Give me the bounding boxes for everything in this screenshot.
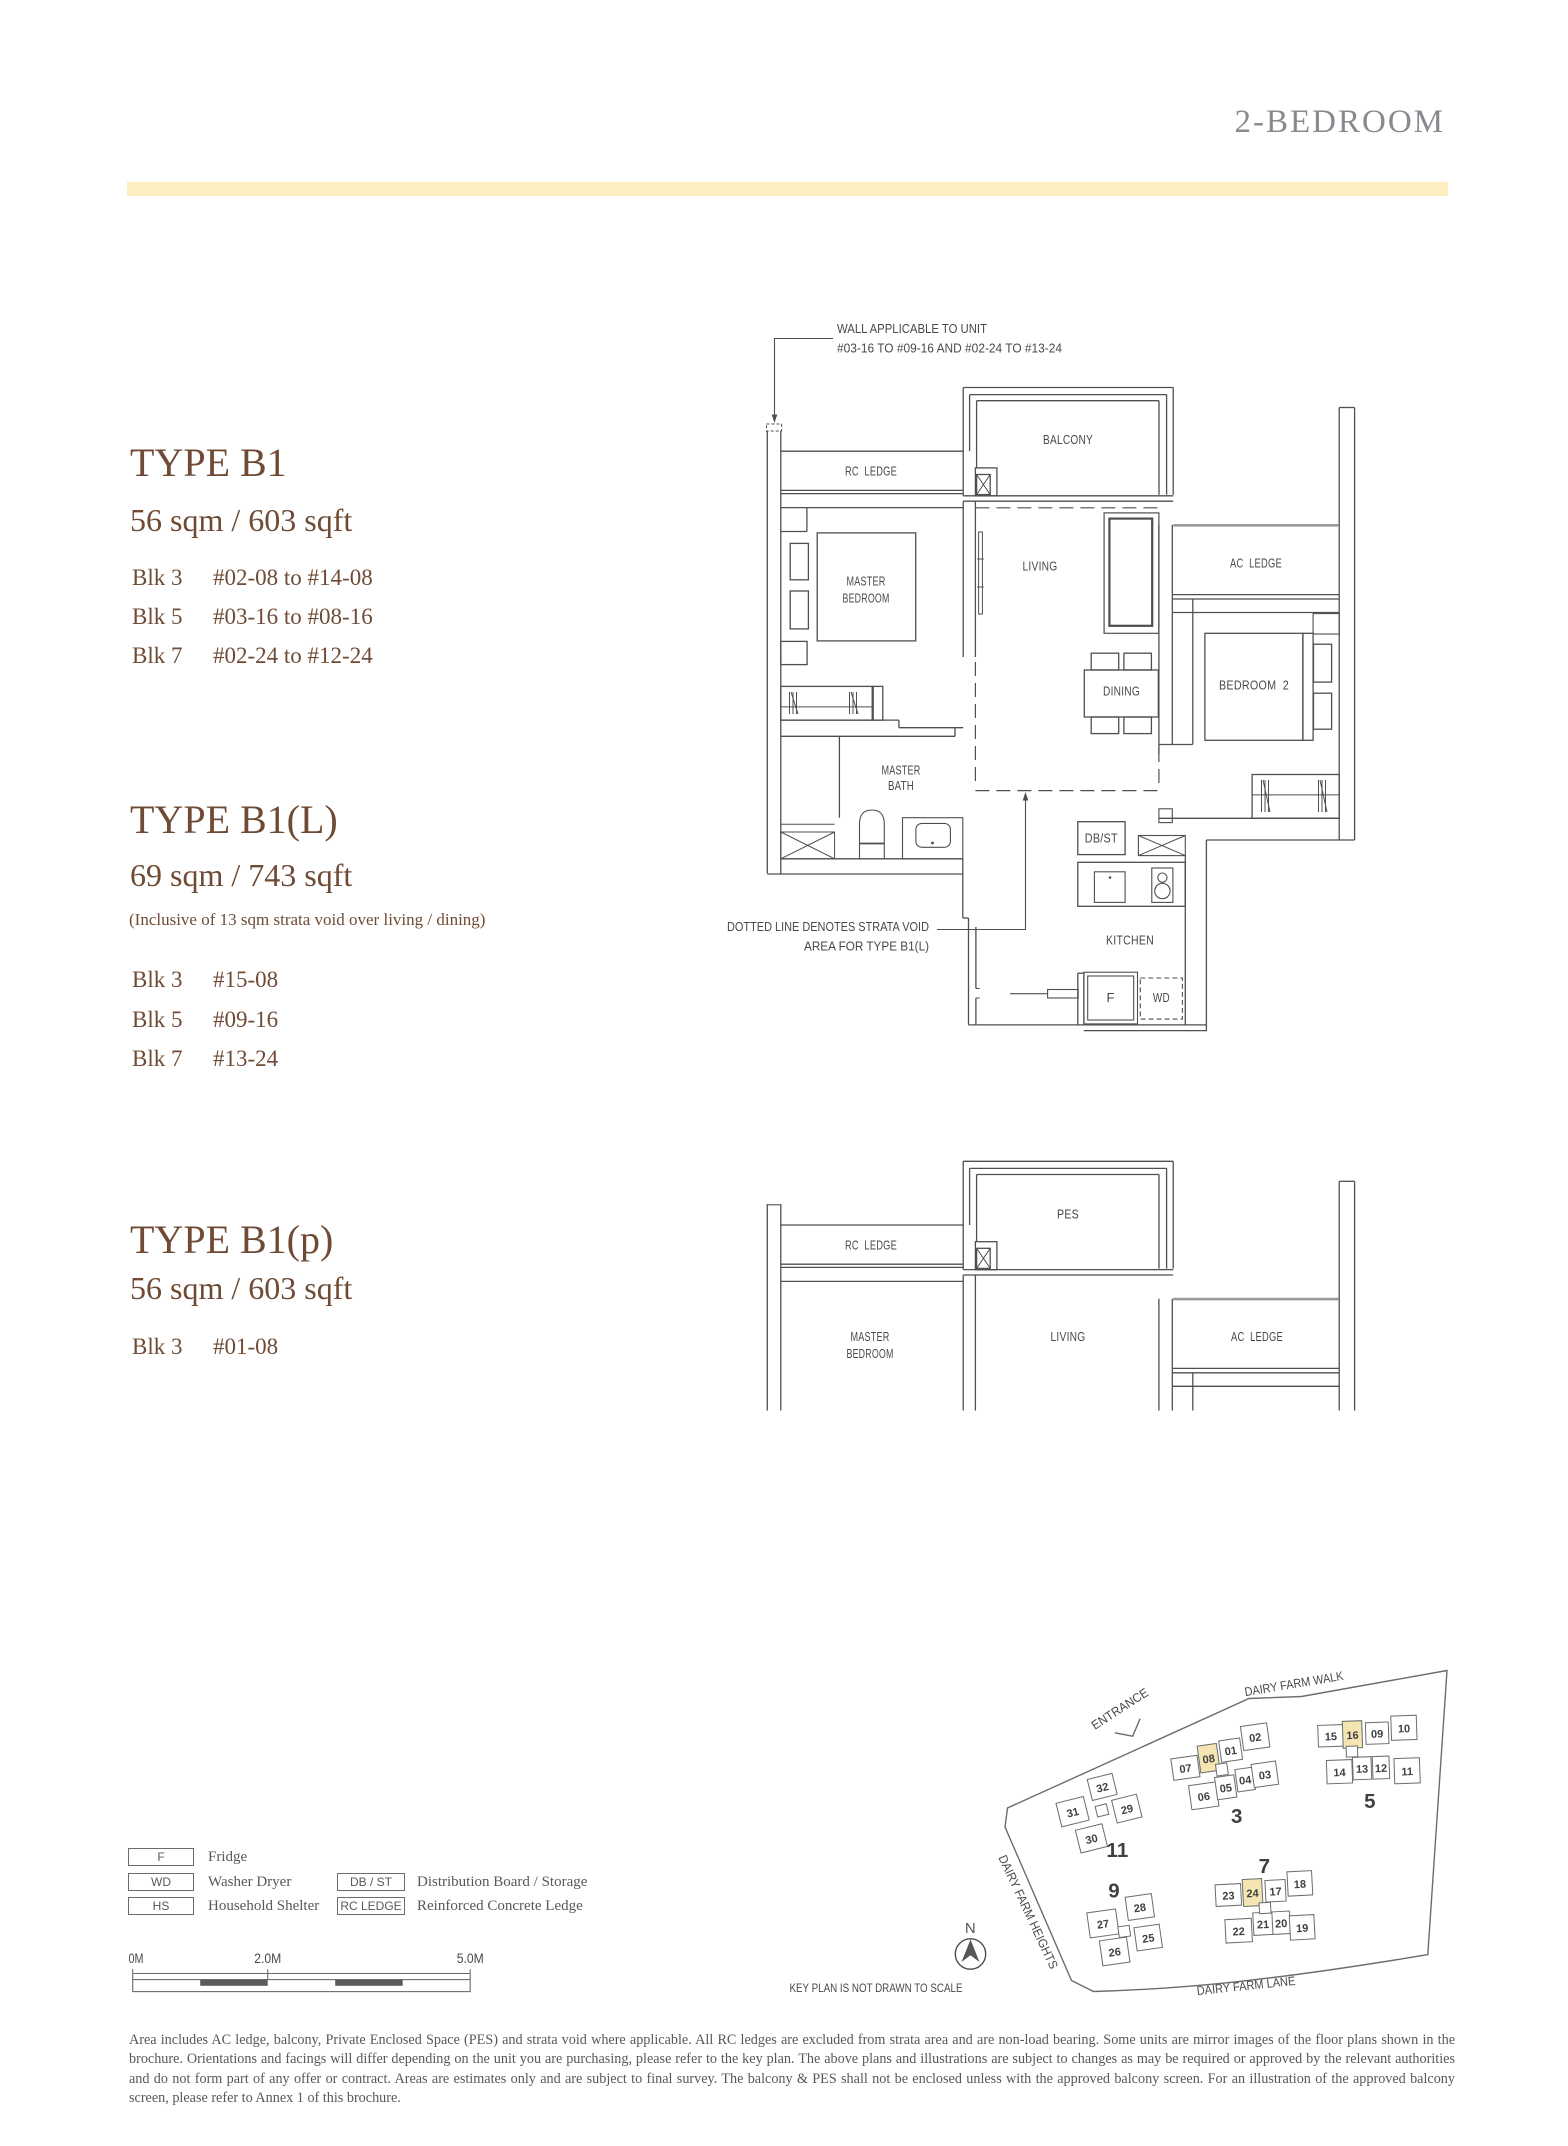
svg-text:11: 11 <box>1106 1839 1128 1862</box>
svg-text:25: 25 <box>1142 1932 1156 1946</box>
svg-text:F: F <box>1106 990 1114 1005</box>
svg-text:RC LEDGE: RC LEDGE <box>845 1237 897 1252</box>
svg-text:02: 02 <box>1248 1731 1262 1745</box>
svg-text:5.0M: 5.0M <box>457 1950 484 1966</box>
svg-text:24: 24 <box>1246 1888 1260 1901</box>
svg-text:DAIRY FARM LANE: DAIRY FARM LANE <box>1196 1974 1296 1998</box>
svg-text:MASTER: MASTER <box>847 574 886 589</box>
svg-text:N: N <box>965 1920 976 1937</box>
svg-text:BALCONY: BALCONY <box>1043 432 1093 447</box>
svg-text:BEDROOM: BEDROOM <box>843 591 890 606</box>
svg-text:28: 28 <box>1133 1902 1147 1916</box>
svg-text:RC LEDGE: RC LEDGE <box>845 464 897 479</box>
svg-text:9: 9 <box>1108 1880 1120 1903</box>
svg-text:13: 13 <box>1356 1764 1369 1776</box>
svg-text:16: 16 <box>1346 1730 1359 1742</box>
svg-text:12: 12 <box>1375 1763 1388 1775</box>
svg-text:18: 18 <box>1294 1879 1307 1892</box>
svg-text:BEDROOM: BEDROOM <box>847 1346 894 1361</box>
svg-text:WD: WD <box>1153 990 1170 1005</box>
svg-text:DINING: DINING <box>1103 684 1140 699</box>
svg-text:7: 7 <box>1259 1855 1271 1878</box>
svg-text:AC LEDGE: AC LEDGE <box>1230 556 1282 571</box>
svg-text:20: 20 <box>1275 1918 1288 1931</box>
svg-text:05: 05 <box>1219 1782 1233 1796</box>
svg-text:DB/ST: DB/ST <box>1085 831 1118 846</box>
svg-text:MASTER: MASTER <box>851 1329 890 1344</box>
svg-text:ENTRANCE: ENTRANCE <box>1089 1685 1151 1732</box>
svg-text:AREA FOR TYPE B1(L): AREA FOR TYPE B1(L) <box>804 939 929 954</box>
svg-text:DOTTED LINE DENOTES STRATA VOI: DOTTED LINE DENOTES STRATA VOID <box>727 919 929 934</box>
svg-text:#03-16 TO #09-16 AND #02-24 TO: #03-16 TO #09-16 AND #02-24 TO #13-24 <box>837 341 1062 356</box>
svg-text:0M: 0M <box>129 1950 144 1966</box>
svg-text:21: 21 <box>1257 1919 1270 1932</box>
svg-text:5: 5 <box>1364 1790 1376 1813</box>
svg-text:2.0M: 2.0M <box>254 1950 281 1966</box>
svg-text:06: 06 <box>1197 1791 1211 1805</box>
svg-text:03: 03 <box>1258 1769 1272 1783</box>
svg-text:DAIRY FARM WALK: DAIRY FARM WALK <box>1244 1669 1346 1699</box>
svg-text:23: 23 <box>1222 1890 1235 1903</box>
svg-text:MASTER: MASTER <box>882 763 921 778</box>
svg-text:LIVING: LIVING <box>1023 559 1058 574</box>
svg-text:DAIRY FARM HEIGHTS: DAIRY FARM HEIGHTS <box>995 1853 1060 1971</box>
svg-text:26: 26 <box>1108 1946 1122 1960</box>
svg-text:15: 15 <box>1325 1731 1338 1743</box>
svg-text:KITCHEN: KITCHEN <box>1106 933 1154 948</box>
svg-text:27: 27 <box>1096 1918 1110 1932</box>
svg-text:07: 07 <box>1179 1762 1193 1776</box>
svg-text:10: 10 <box>1398 1723 1411 1735</box>
svg-text:08: 08 <box>1202 1753 1216 1767</box>
svg-text:19: 19 <box>1296 1923 1309 1936</box>
svg-text:3: 3 <box>1231 1805 1243 1828</box>
svg-text:PES: PES <box>1057 1207 1079 1222</box>
svg-text:11: 11 <box>1401 1766 1413 1778</box>
svg-text:BATH: BATH <box>888 778 914 793</box>
svg-text:09: 09 <box>1371 1728 1384 1740</box>
svg-text:14: 14 <box>1333 1767 1347 1779</box>
svg-text:01: 01 <box>1224 1745 1238 1759</box>
svg-text:KEY PLAN IS NOT DRAWN TO SCALE: KEY PLAN IS NOT DRAWN TO SCALE <box>790 1981 963 1995</box>
svg-text:WALL APPLICABLE TO UNIT: WALL APPLICABLE TO UNIT <box>837 321 987 336</box>
svg-text:17: 17 <box>1269 1886 1282 1899</box>
svg-text:22: 22 <box>1232 1926 1245 1939</box>
svg-text:AC LEDGE: AC LEDGE <box>1231 1329 1283 1344</box>
svg-text:BEDROOM 2: BEDROOM 2 <box>1219 678 1289 693</box>
svg-text:LIVING: LIVING <box>1051 1329 1086 1344</box>
